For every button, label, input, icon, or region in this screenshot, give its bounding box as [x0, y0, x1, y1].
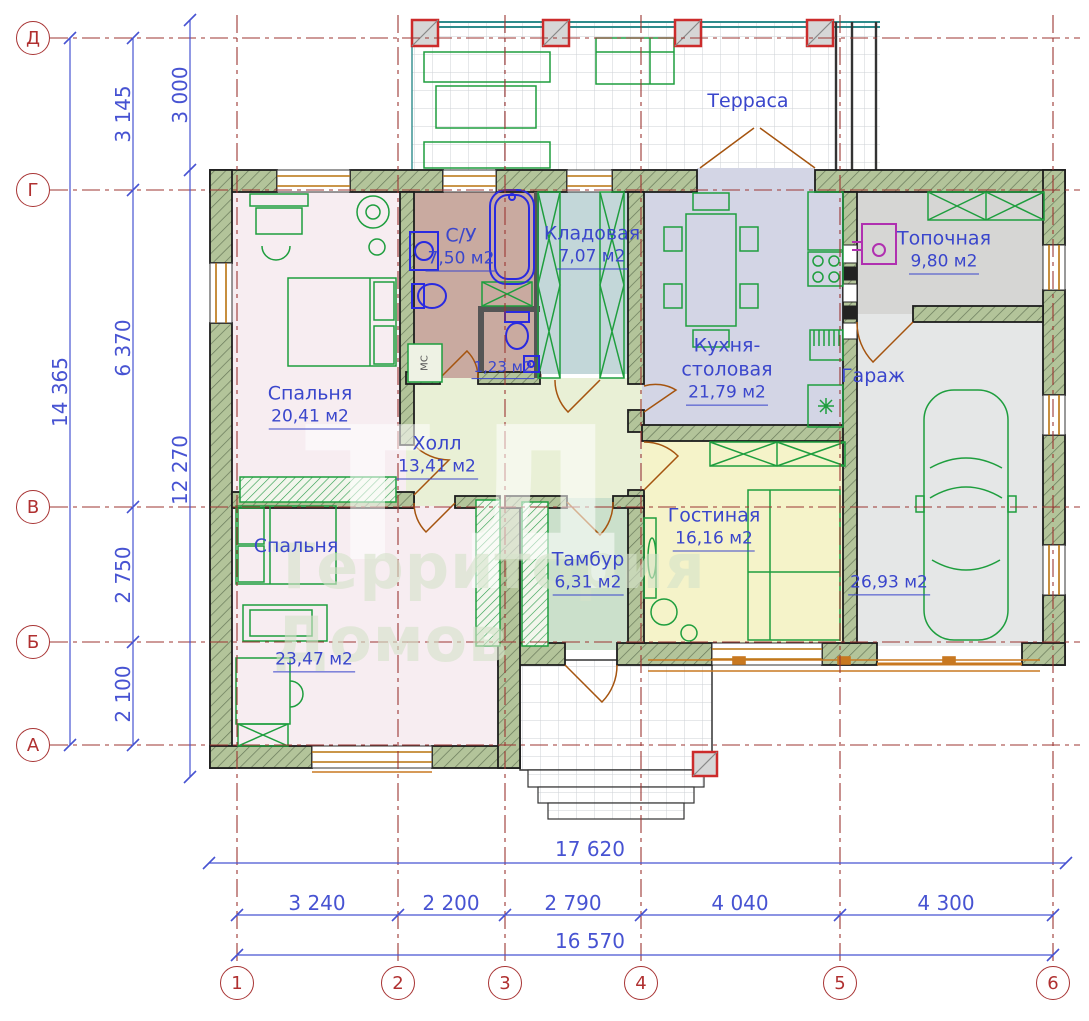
- closet-mc-label: МС: [420, 355, 431, 371]
- room-label-boiler: Топочная 9,80 м2: [897, 228, 991, 275]
- room-label-kitchen: Кухня-столовая 21,79 м2: [675, 335, 779, 406]
- dim-bottom-inner: 16 570: [555, 929, 625, 953]
- floor-plan-page: ТД Территория Домов Терраса Спальня 20,4…: [0, 0, 1089, 1021]
- dim-bottom-seg-3: 4 040: [711, 891, 768, 915]
- axis-row-d: Д: [16, 21, 50, 55]
- room-label-hall: Холл 13,41 м2: [396, 433, 478, 480]
- dim-left-seg-2: 2 750: [111, 546, 135, 603]
- floor-plan-drawing: [0, 0, 1089, 1021]
- room-label-living: Гостиная 16,16 м2: [668, 505, 761, 552]
- room-label-garage-name: Гараж: [841, 365, 905, 389]
- dim-bottom-seg-0: 3 240: [288, 891, 345, 915]
- axis-row-v: В: [16, 490, 50, 524]
- room-label-bedroom2-name: Спальня: [254, 535, 339, 559]
- flue-shafts: [843, 245, 857, 339]
- axis-col-1: 1: [220, 966, 254, 1000]
- axis-col-3: 3: [488, 966, 522, 1000]
- dim-left-seg-3: 2 100: [111, 665, 135, 722]
- room-label-wc: 1,23 м2: [471, 357, 534, 379]
- dim-bottom-seg-4: 4 300: [917, 891, 974, 915]
- room-label-terrace: Терраса: [707, 90, 788, 114]
- dim-left-inner: 12 270: [168, 435, 192, 505]
- room-label-vestibule: Тамбур 6,31 м2: [552, 549, 625, 596]
- axis-row-a: А: [16, 728, 50, 762]
- axis-row-g: Г: [16, 173, 50, 207]
- dim-left-total: 14 365: [48, 357, 72, 427]
- axis-row-b: Б: [16, 625, 50, 659]
- room-label-bedroom1: Спальня 20,41 м2: [268, 383, 353, 430]
- dim-left-seg-1: 6 370: [111, 319, 135, 376]
- axis-col-5: 5: [823, 966, 857, 1000]
- room-label-bedroom2-area: 23,47 м2: [273, 649, 355, 672]
- room-label-storage: Кладовая 7,07 м2: [544, 223, 640, 270]
- dim-left-inner-top: 3 000: [168, 66, 192, 123]
- axis-col-2: 2: [381, 966, 415, 1000]
- dim-left-seg-0: 3 145: [111, 85, 135, 142]
- room-label-bath: С/У 7,50 м2: [426, 225, 497, 272]
- axis-col-6: 6: [1036, 966, 1070, 1000]
- axis-col-4: 4: [624, 966, 658, 1000]
- dim-bottom-seg-1: 2 200: [422, 891, 479, 915]
- dim-bottom-seg-2: 2 790: [544, 891, 601, 915]
- room-label-garage-area: 26,93 м2: [848, 572, 930, 595]
- dim-bottom-outer: 17 620: [555, 837, 625, 861]
